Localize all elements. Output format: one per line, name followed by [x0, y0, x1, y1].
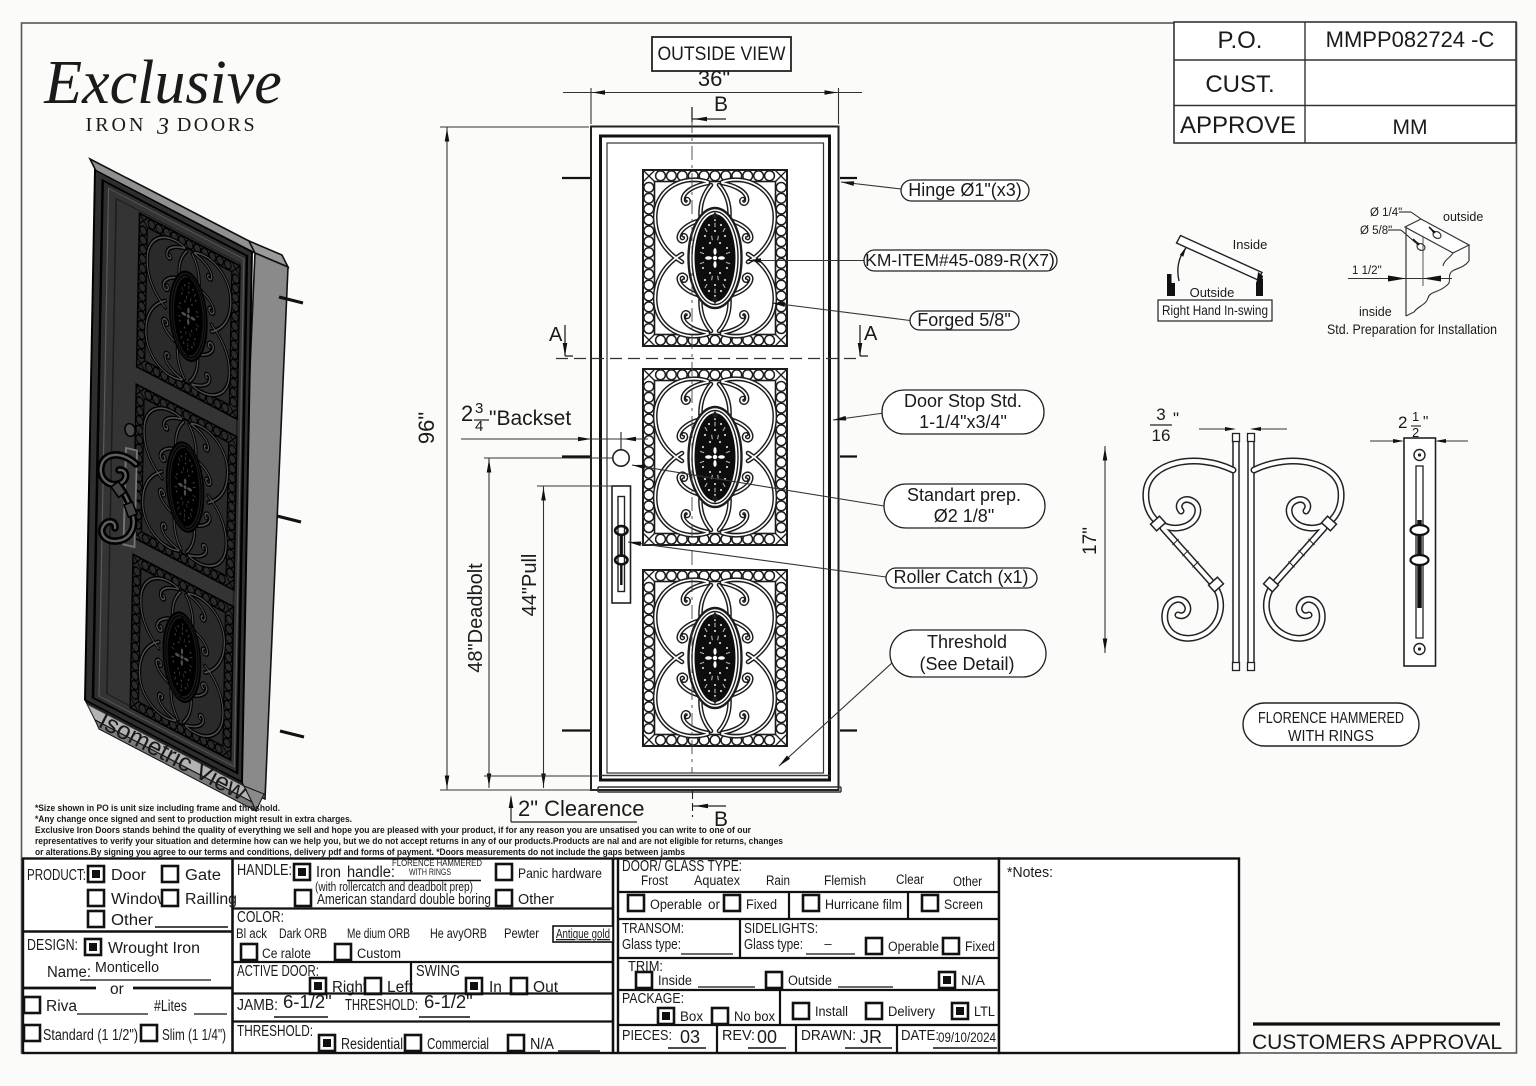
svg-text:WITH RINGS: WITH RINGS: [1288, 728, 1374, 745]
svg-text:3: 3: [1156, 405, 1165, 424]
svg-text:Right Hand In-swing: Right Hand In-swing: [1162, 303, 1268, 318]
svg-text:16: 16: [1152, 426, 1171, 445]
svg-text:DATE:: DATE:: [901, 1028, 939, 1044]
svg-text:Install: Install: [815, 1004, 848, 1019]
svg-text:JR: JR: [860, 1027, 882, 1047]
svg-text:Standard (1 1/2"): Standard (1 1/2"): [43, 1027, 138, 1044]
svg-text:Ce ralote: Ce ralote: [262, 946, 311, 961]
svg-text:ACTIVE DOOR:: ACTIVE DOOR:: [237, 963, 319, 980]
svg-text:2: 2: [461, 401, 473, 426]
svg-text:Panic hardware: Panic hardware: [518, 865, 602, 881]
svg-text:Custom: Custom: [357, 946, 401, 961]
svg-text:Other: Other: [518, 892, 554, 908]
svg-text:96": 96": [414, 412, 439, 444]
svg-text:": ": [1173, 409, 1179, 428]
svg-text:Box: Box: [680, 1009, 703, 1024]
svg-text:Door: Door: [111, 867, 146, 884]
svg-text:Pewter: Pewter: [504, 926, 539, 941]
svg-text:Flemish: Flemish: [824, 873, 866, 888]
svg-text:1: 1: [1412, 409, 1419, 424]
svg-text:SIDELIGHTS:: SIDELIGHTS:: [744, 921, 818, 937]
svg-text:6-1/2": 6-1/2": [424, 991, 473, 1012]
svg-text:Ø 1/4": Ø 1/4": [1370, 207, 1402, 219]
svg-text:3: 3: [475, 400, 483, 417]
svg-text:A: A: [864, 323, 878, 345]
svg-text:PRODUCT:: PRODUCT:: [27, 867, 86, 884]
svg-text:Hurricane film: Hurricane film: [825, 897, 902, 912]
svg-text:Commercial: Commercial: [427, 1036, 489, 1053]
svg-text:2" Clearence: 2" Clearence: [518, 796, 644, 821]
svg-text:Exclusive Iron Doors stands be: Exclusive Iron Doors stands behind the q…: [35, 825, 751, 835]
svg-text:PACKAGE:: PACKAGE:: [622, 991, 684, 1007]
svg-text:B: B: [714, 93, 728, 116]
svg-text:American standard double borin: American standard double boring: [317, 892, 491, 908]
svg-text:Operable: Operable: [650, 897, 702, 912]
svg-text:Delivery: Delivery: [888, 1004, 935, 1019]
svg-text:Clear: Clear: [896, 872, 924, 887]
svg-text:Inside: Inside: [658, 973, 692, 988]
svg-text:36": 36": [698, 66, 730, 91]
svg-text:Slim (1 1/4"): Slim (1 1/4"): [162, 1027, 226, 1044]
svg-text:CUSTOMERS APPROVAL: CUSTOMERS APPROVAL: [1252, 1031, 1502, 1054]
svg-text:Outside: Outside: [1190, 285, 1235, 300]
svg-text:FLORENCE HAMMERED: FLORENCE HAMMERED: [1258, 710, 1404, 727]
svg-text:09/10/2024: 09/10/2024: [938, 1029, 996, 1045]
svg-text:Monticello: Monticello: [95, 959, 159, 976]
svg-text:"Backset: "Backset: [489, 407, 571, 430]
svg-text:#Lites: #Lites: [154, 998, 187, 1015]
svg-text:outside: outside: [1443, 210, 1483, 224]
svg-text:DESIGN:: DESIGN:: [27, 937, 78, 954]
svg-text:Hinge Ø1"(x3): Hinge Ø1"(x3): [908, 180, 1021, 200]
svg-text:APPROVE: APPROVE: [1180, 112, 1296, 139]
svg-text:IRON: IRON: [86, 114, 147, 136]
svg-text:3: 3: [156, 114, 169, 140]
svg-text:inside: inside: [1359, 305, 1392, 319]
svg-text:44"Pull: 44"Pull: [519, 554, 541, 617]
svg-text:Door Stop Std.: Door Stop Std.: [904, 391, 1022, 411]
svg-text:Iron: Iron: [316, 864, 341, 881]
svg-text:Inside: Inside: [1233, 237, 1268, 252]
svg-text:1-1/4"x3/4": 1-1/4"x3/4": [919, 412, 1007, 432]
svg-text:THRESHOLD:: THRESHOLD:: [345, 997, 418, 1014]
svg-text:SWING: SWING: [416, 963, 460, 980]
svg-text:00: 00: [757, 1027, 777, 1047]
svg-text:HANDLE:: HANDLE:: [237, 862, 292, 879]
svg-text:LTL: LTL: [974, 1004, 995, 1019]
svg-text:Dark ORB: Dark ORB: [279, 926, 327, 941]
svg-text:Frost: Frost: [641, 873, 668, 888]
svg-text:Roller Catch (x1): Roller Catch (x1): [893, 567, 1028, 587]
svg-text:48"Deadbolt: 48"Deadbolt: [465, 563, 487, 673]
svg-text:or: or: [708, 897, 721, 912]
svg-text:PIECES:: PIECES:: [622, 1028, 672, 1044]
svg-text:–: –: [824, 936, 832, 951]
svg-text:Name:: Name:: [47, 964, 91, 981]
svg-text:P.O.: P.O.: [1218, 27, 1263, 54]
svg-text:Std. Preparation for Installat: Std. Preparation for Installation: [1327, 321, 1497, 337]
svg-text:Threshold: Threshold: [927, 632, 1007, 652]
svg-text:Glass type:: Glass type:: [744, 937, 803, 953]
svg-text:No box: No box: [734, 1009, 775, 1024]
svg-text:Forged 5/8": Forged 5/8": [917, 310, 1010, 330]
svg-text:Fixed: Fixed: [965, 939, 995, 954]
svg-text:Other: Other: [111, 912, 153, 929]
svg-text:Operable: Operable: [888, 939, 939, 954]
svg-text:": ": [1423, 413, 1428, 430]
svg-text:2: 2: [1398, 413, 1407, 432]
svg-text:1 1/2": 1 1/2": [1352, 265, 1382, 277]
svg-text:DOORS: DOORS: [177, 114, 257, 136]
svg-text:WITH RINGS: WITH RINGS: [409, 867, 451, 878]
svg-text:17": 17": [1080, 527, 1101, 555]
svg-text:DRAWN:: DRAWN:: [801, 1028, 856, 1044]
svg-text:Glass type:: Glass type:: [622, 937, 681, 953]
svg-text:TRANSOM:: TRANSOM:: [622, 921, 684, 937]
svg-text:Riva: Riva: [46, 998, 77, 1015]
svg-text:Rain: Rain: [766, 873, 790, 888]
svg-text:A: A: [549, 324, 563, 346]
svg-text:N/A: N/A: [530, 1036, 555, 1053]
svg-text:KM-ITEM#45-089-R(X7): KM-ITEM#45-089-R(X7): [865, 250, 1055, 270]
svg-text:6-1/2": 6-1/2": [283, 991, 332, 1012]
svg-text:Standart prep.: Standart prep.: [907, 485, 1021, 505]
svg-text:COLOR:: COLOR:: [237, 909, 284, 926]
svg-text:or alterations.By signing you: or alterations.By signing you agree to o…: [35, 847, 685, 857]
svg-text:MM: MM: [1393, 116, 1428, 139]
svg-text:THRESHOLD:: THRESHOLD:: [237, 1023, 313, 1040]
svg-text:CUST.: CUST.: [1205, 71, 1274, 98]
svg-text:Outside: Outside: [788, 973, 832, 988]
svg-text:Wrought Iron: Wrought Iron: [108, 940, 200, 957]
svg-text:MMPP082724 -C: MMPP082724 -C: [1326, 27, 1495, 52]
svg-text:Antique gold: Antique gold: [556, 926, 610, 941]
svg-text:Screen: Screen: [944, 897, 983, 912]
svg-text:or: or: [110, 981, 124, 998]
svg-text:Railling: Railling: [185, 891, 237, 908]
svg-text:Ø 5/8": Ø 5/8": [1360, 225, 1392, 237]
svg-text:He avyORB: He avyORB: [430, 926, 487, 941]
svg-text:03: 03: [680, 1027, 700, 1047]
svg-text:Fixed: Fixed: [746, 897, 777, 912]
svg-text:Bl ack: Bl ack: [236, 926, 267, 941]
svg-text:*Notes:: *Notes:: [1007, 864, 1053, 881]
svg-text:Residential: Residential: [341, 1036, 403, 1053]
svg-text:Ø2 1/8": Ø2 1/8": [934, 506, 994, 526]
svg-text:(See Detail): (See Detail): [919, 654, 1014, 674]
svg-text:Gate: Gate: [185, 867, 221, 884]
svg-text:Exclusive: Exclusive: [43, 49, 282, 117]
svg-text:Me dium ORB: Me dium ORB: [347, 926, 410, 941]
svg-text:representatives to verify your: representatives to verify your situation…: [35, 836, 783, 846]
svg-text:Aquatex: Aquatex: [694, 873, 740, 888]
svg-text:N/A: N/A: [961, 973, 985, 988]
svg-text:*Size shown in PO is unit size: *Size shown in PO is unit size including…: [35, 803, 280, 813]
svg-text:*Any change once signed and se: *Any change once signed and sent to prod…: [35, 814, 352, 824]
svg-text:JAMB:: JAMB:: [237, 997, 278, 1014]
svg-text:handle:: handle:: [347, 864, 395, 881]
svg-text:OUTSIDE VIEW: OUTSIDE VIEW: [658, 43, 787, 65]
svg-text:Other: Other: [953, 874, 982, 889]
svg-text:REV:: REV:: [722, 1028, 755, 1044]
